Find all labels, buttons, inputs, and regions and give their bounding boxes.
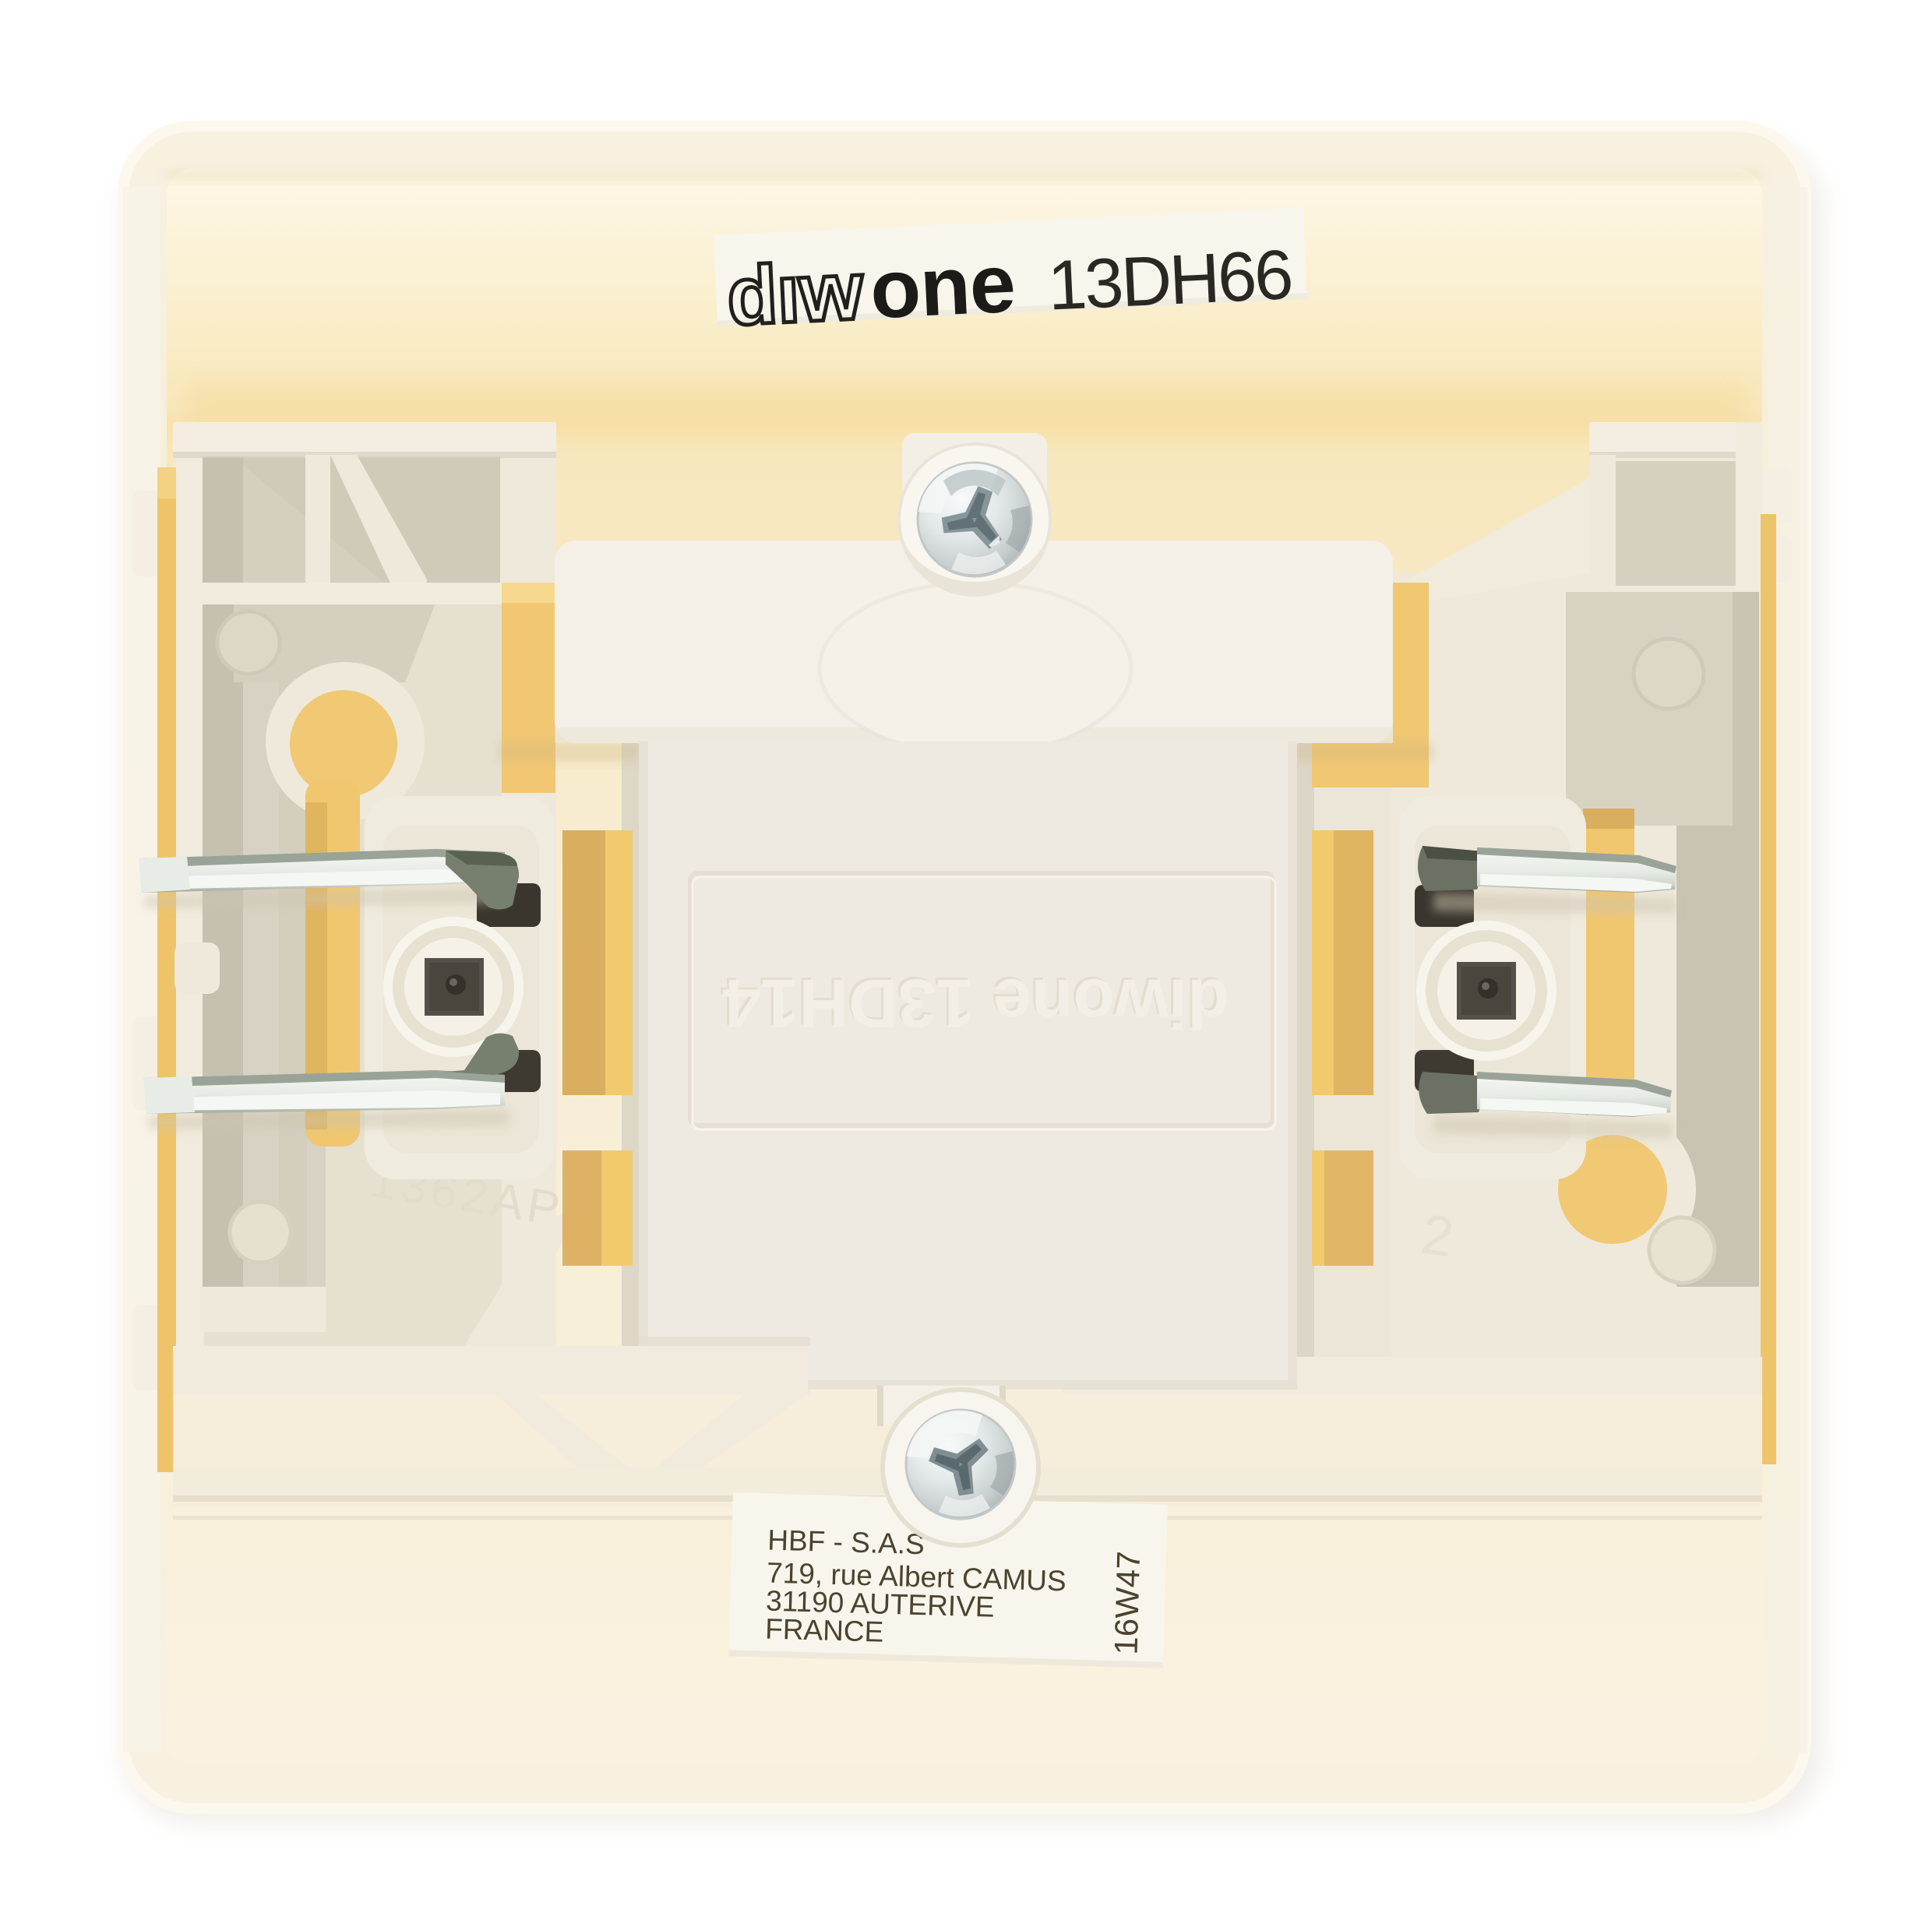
svg-text:diwone 13DH14: diwone 13DH14 xyxy=(723,965,1229,1042)
svg-text:one: one xyxy=(868,238,1017,336)
svg-text:FRANCE: FRANCE xyxy=(765,1613,884,1648)
svg-text:16W47: 16W47 xyxy=(1107,1551,1147,1655)
svg-text:HBF - S.A.S: HBF - S.A.S xyxy=(767,1524,925,1561)
svg-text:dıw: dıw xyxy=(725,245,866,343)
svg-text:13DH66: 13DH66 xyxy=(1046,236,1293,326)
